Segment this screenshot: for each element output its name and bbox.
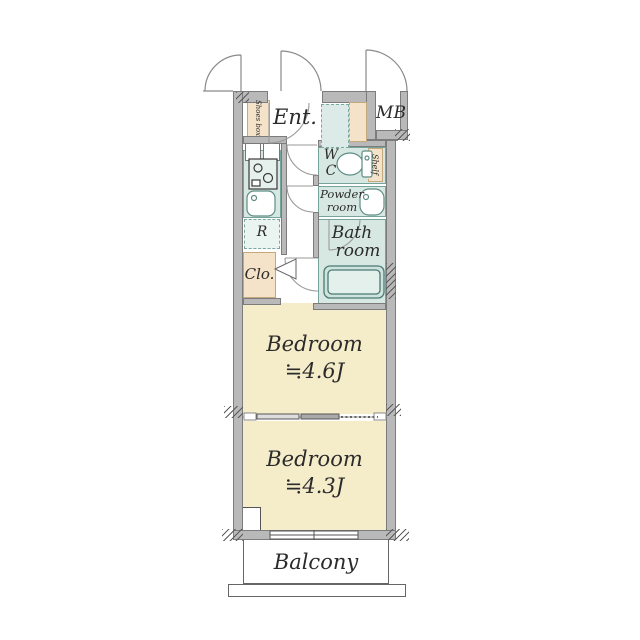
wc-shelf-label: Shelf <box>371 140 380 190</box>
plan-symbols <box>0 0 640 640</box>
bedroom1-size: ≒4.6J <box>243 360 386 383</box>
wc-label-line2: C <box>321 164 341 179</box>
balcony-window <box>270 530 358 540</box>
refrigerator-label: R <box>244 225 280 240</box>
toilet-icon <box>337 151 372 177</box>
powder-room-label-line1: Powder <box>318 188 366 201</box>
bedroom2-label: Bedroom <box>243 448 386 471</box>
bath-room-label-line1: Bath <box>322 224 382 243</box>
closet-label: Clo. <box>243 266 276 283</box>
washer-area <box>321 104 349 148</box>
bath-room-label-line2: room <box>328 242 388 261</box>
balcony-label: Balcony <box>243 551 389 574</box>
meter-box-label: MB <box>372 104 410 123</box>
meter-box-door-arc <box>366 50 407 91</box>
entrance-door-arc <box>281 51 321 91</box>
entrance-label: Ent. <box>266 106 324 129</box>
bathtub-icon <box>324 266 384 298</box>
powder-room-label-line2: room <box>318 201 366 214</box>
wc-label-line1: W <box>321 148 341 163</box>
bedroom1-label: Bedroom <box>243 333 386 356</box>
kitchen-sink-icon <box>247 191 275 216</box>
stove-icon <box>249 159 277 189</box>
wc-door-arc <box>287 145 317 175</box>
bedroom-partition <box>243 413 386 420</box>
powder-door-arc <box>287 186 313 212</box>
entrance-shelf-area <box>349 102 367 142</box>
floor-plan: Ent. MB Shoes box W Shelf W C Shelf Powd… <box>0 0 640 640</box>
neighbor-door-arc <box>205 55 241 91</box>
bedroom2-size: ≒4.3J <box>243 475 386 498</box>
shoes-box-label: Shoes box <box>254 90 262 146</box>
